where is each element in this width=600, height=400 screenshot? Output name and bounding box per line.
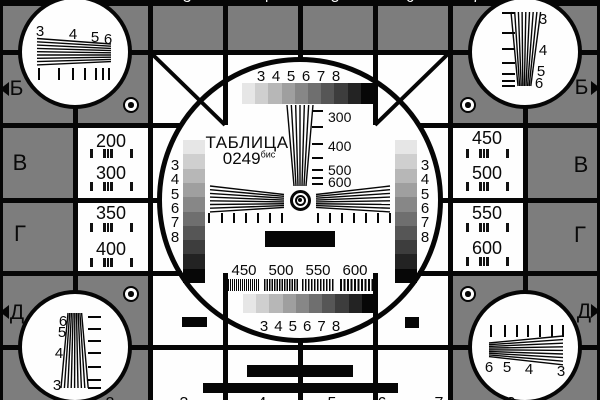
convergence-target-tl-dot: [128, 102, 133, 107]
grayscale-step-top: [348, 83, 361, 104]
center-tick: [389, 213, 391, 223]
cell-number: 600: [465, 237, 509, 259]
edge-letter-g-left: Г: [9, 223, 31, 245]
cell-tick: [90, 223, 93, 232]
edge-partial-digit-top: 7: [454, 0, 498, 7]
fan-center-left: [210, 186, 284, 212]
burst-label: 600: [333, 261, 377, 280]
grayscale-label-top: 8: [314, 67, 358, 86]
corner-tick-br: [516, 325, 518, 337]
cell-tick: [466, 149, 469, 158]
corner-tick-bl: [88, 366, 101, 368]
grayscale-step-bottom: [322, 294, 335, 313]
grayscale-step-left: [183, 140, 205, 155]
corner-tick-tl: [84, 68, 86, 80]
edge-partial-digit-bottom: 7: [417, 394, 461, 400]
center-tick: [281, 213, 283, 223]
cell-number: 500: [465, 162, 509, 184]
convergence-target-br-dot: [465, 291, 470, 296]
corner-tick-br: [551, 325, 553, 337]
corner-wedge-label: 5: [40, 323, 84, 342]
corner-tick-tr: [502, 32, 515, 34]
center-tick: [245, 213, 247, 223]
cell-tick: [506, 257, 509, 266]
corner-tick-tl: [108, 68, 110, 80]
bottom-narrow-bar: [247, 365, 353, 377]
corner-tick-bl: [88, 316, 101, 318]
corner-tick-bl: [88, 340, 101, 342]
cell-tick: [479, 257, 482, 266]
convergence-target-tr-dot: [465, 102, 470, 107]
wedge-tick-dash: [312, 143, 323, 145]
corner-tick-tl: [72, 68, 74, 80]
cell-tick: [506, 223, 509, 232]
card-number-suffix: бис: [261, 149, 276, 159]
grayscale-step-top: [282, 83, 295, 104]
bottom-wide-bar: [203, 383, 398, 393]
grayscale-step-right: [395, 269, 417, 284]
cell-number: 400: [89, 238, 133, 260]
cell-tick: [90, 182, 93, 191]
wedge-tick-dash: [312, 157, 323, 159]
edge-partial-digit-bottom: 8: [489, 394, 533, 400]
cell-number: 350: [89, 202, 133, 224]
corner-wedge-label: 4: [521, 41, 565, 60]
edge-partial-digit-bottom: 5: [310, 394, 354, 400]
corner-tick-bl: [88, 328, 101, 330]
wedge-frequency-label: 600: [328, 173, 368, 191]
frequency-burst: [228, 279, 260, 291]
cell-tick: [130, 223, 133, 232]
test-card: ТАБЛИЦА 0249бис Б Б В В Г Г Д Д 33334444…: [0, 0, 600, 400]
cell-tick: [483, 182, 486, 191]
cell-tick: [479, 182, 482, 191]
cell-tick: [483, 223, 486, 232]
center-black-bar: [265, 231, 335, 247]
cell-tick: [110, 258, 113, 267]
grayscale-step-left: [183, 269, 205, 284]
wedge-tick-dash: [312, 126, 323, 128]
center-tick: [233, 213, 235, 223]
grayscale-step-top: [334, 83, 347, 104]
corner-tick-tr: [502, 62, 515, 64]
corner-tick-br: [527, 325, 529, 337]
cell-tick: [486, 149, 489, 158]
corner-tick-br: [539, 325, 541, 337]
corner-tick-tr: [502, 48, 515, 50]
grayscale-step-left: [183, 254, 205, 269]
wedge-tick-dash: [312, 110, 323, 112]
corner-tick-br: [562, 325, 564, 337]
center-tick: [269, 213, 271, 223]
edge-letter-v-left: В: [9, 152, 31, 174]
center-tick: [377, 213, 379, 223]
grayscale-step-top: [255, 83, 268, 104]
corner-tick-tl: [38, 68, 40, 80]
corner-wedge-label: 3: [35, 376, 79, 395]
frequency-burst: [302, 279, 335, 291]
arrow-left-top: [0, 82, 9, 96]
grayscale-step-bottom: [362, 294, 375, 313]
cell-number: 550: [465, 202, 509, 224]
cell-tick: [479, 223, 482, 232]
corner-wedge-label: 6: [86, 30, 130, 49]
grayscale-step-bottom: [283, 294, 296, 313]
grayscale-label-right: 8: [403, 228, 447, 247]
grayscale-step-bottom: [269, 294, 282, 313]
cell-tick: [130, 149, 133, 158]
right-black-square: [405, 317, 419, 328]
center-tick: [365, 213, 367, 223]
edge-partial-digit-bottom: 3: [162, 394, 206, 400]
grayscale-step-top: [361, 83, 374, 104]
cell-tick: [466, 182, 469, 191]
cell-tick: [506, 182, 509, 191]
cell-tick: [486, 223, 489, 232]
grayscale-step-bottom: [349, 294, 362, 313]
corner-tick-tr: [502, 73, 515, 75]
center-tick: [329, 213, 331, 223]
grayscale-step-bottom: [296, 294, 309, 313]
edge-letter-b-left: Б: [6, 78, 27, 99]
cell-tick: [107, 149, 110, 158]
arrow-right-top: [591, 81, 600, 95]
cell-tick: [107, 258, 110, 267]
grayscale-step-top: [268, 83, 281, 104]
center-tick: [353, 213, 355, 223]
edge-letter-b-right: Б: [571, 77, 592, 98]
left-black-rect: [182, 317, 207, 327]
wedge-frequency-label: 400: [328, 137, 368, 155]
edge-letter-d-left: Д: [6, 302, 28, 323]
cell-tick: [483, 257, 486, 266]
corner-wedge-label: 3: [521, 10, 565, 29]
corner-tick-tl: [95, 68, 97, 80]
arrow-left-bottom: [0, 305, 9, 319]
edge-partial-digit-top: 5: [313, 0, 357, 7]
center-tick: [317, 213, 319, 223]
grayscale-step-top: [242, 83, 255, 104]
cell-tick: [130, 258, 133, 267]
center-tick: [341, 213, 343, 223]
cell-tick: [90, 258, 93, 267]
corner-tick-bl: [88, 352, 101, 354]
center-tick: [208, 213, 210, 223]
cell-tick: [107, 182, 110, 191]
corner-wedge-label: 4: [37, 344, 81, 363]
cell-tick: [90, 149, 93, 158]
cell-tick: [466, 223, 469, 232]
cell-tick: [103, 182, 106, 191]
grayscale-step-top: [295, 83, 308, 104]
corner-tick-br: [490, 325, 492, 337]
grayscale-step-right: [395, 254, 417, 269]
cell-tick: [486, 257, 489, 266]
grayscale-label-left: 8: [153, 228, 197, 247]
cell-tick: [486, 182, 489, 191]
card-number-value: 0249: [223, 149, 261, 168]
cell-tick: [103, 149, 106, 158]
arrow-right-bottom: [591, 304, 600, 318]
corner-tick-tr: [502, 85, 515, 87]
wedge-tick-dash: [312, 183, 323, 185]
wedge-tick-dash: [312, 177, 323, 179]
corner-tick-br: [504, 325, 506, 337]
cell-tick: [103, 258, 106, 267]
corner-tick-tl: [102, 68, 104, 80]
cell-tick: [130, 182, 133, 191]
cell-tick: [110, 182, 113, 191]
grayscale-step-right: [395, 140, 417, 155]
edge-partial-digit-bottom: 6: [360, 394, 404, 400]
corner-wedge-label: 3: [539, 362, 583, 381]
frequency-burst: [340, 279, 373, 291]
cell-number: 450: [465, 127, 509, 149]
grayscale-step-top: [321, 83, 334, 104]
frequency-burst: [264, 279, 298, 291]
cell-tick: [483, 149, 486, 158]
grayscale-step-top: [308, 83, 321, 104]
grayscale-label-bottom: 8: [314, 317, 358, 336]
corner-tick-bl: [88, 379, 101, 381]
edge-partial-digit-top: 6: [388, 0, 432, 7]
convergence-target-bl-dot: [128, 291, 133, 296]
edge-partial-digit-bottom: 4: [240, 394, 284, 400]
cell-tick: [103, 223, 106, 232]
cell-tick: [466, 257, 469, 266]
cell-tick: [506, 149, 509, 158]
center-tick: [221, 213, 223, 223]
grayscale-step-bottom: [335, 294, 348, 313]
cell-tick: [479, 149, 482, 158]
wedge-frequency-label: 300: [328, 108, 368, 126]
wedge-tick-dash: [312, 169, 323, 171]
cell-tick: [107, 223, 110, 232]
grayscale-step-bottom: [309, 294, 322, 313]
corner-tick-tr: [502, 12, 515, 14]
center-tick: [257, 213, 259, 223]
corner-wedge-label: 6: [517, 74, 561, 93]
cell-number: 300: [89, 162, 133, 184]
edge-partial-digit-bottom: 2: [88, 394, 132, 400]
edge-partial-digit-top: 3: [165, 0, 209, 7]
edge-letter-v-right: В: [570, 154, 592, 176]
cell-tick: [110, 223, 113, 232]
cell-tick: [110, 149, 113, 158]
grayscale-step-bottom: [243, 294, 256, 313]
card-number: 0249бис: [199, 150, 299, 167]
edge-letter-g-right: Г: [569, 224, 591, 246]
edge-partial-digit-top: 4: [243, 0, 287, 7]
corner-tick-bl: [88, 387, 101, 389]
corner-tick-tr: [502, 80, 515, 82]
grayscale-step-bottom: [256, 294, 269, 313]
corner-tick-tl: [58, 68, 60, 80]
